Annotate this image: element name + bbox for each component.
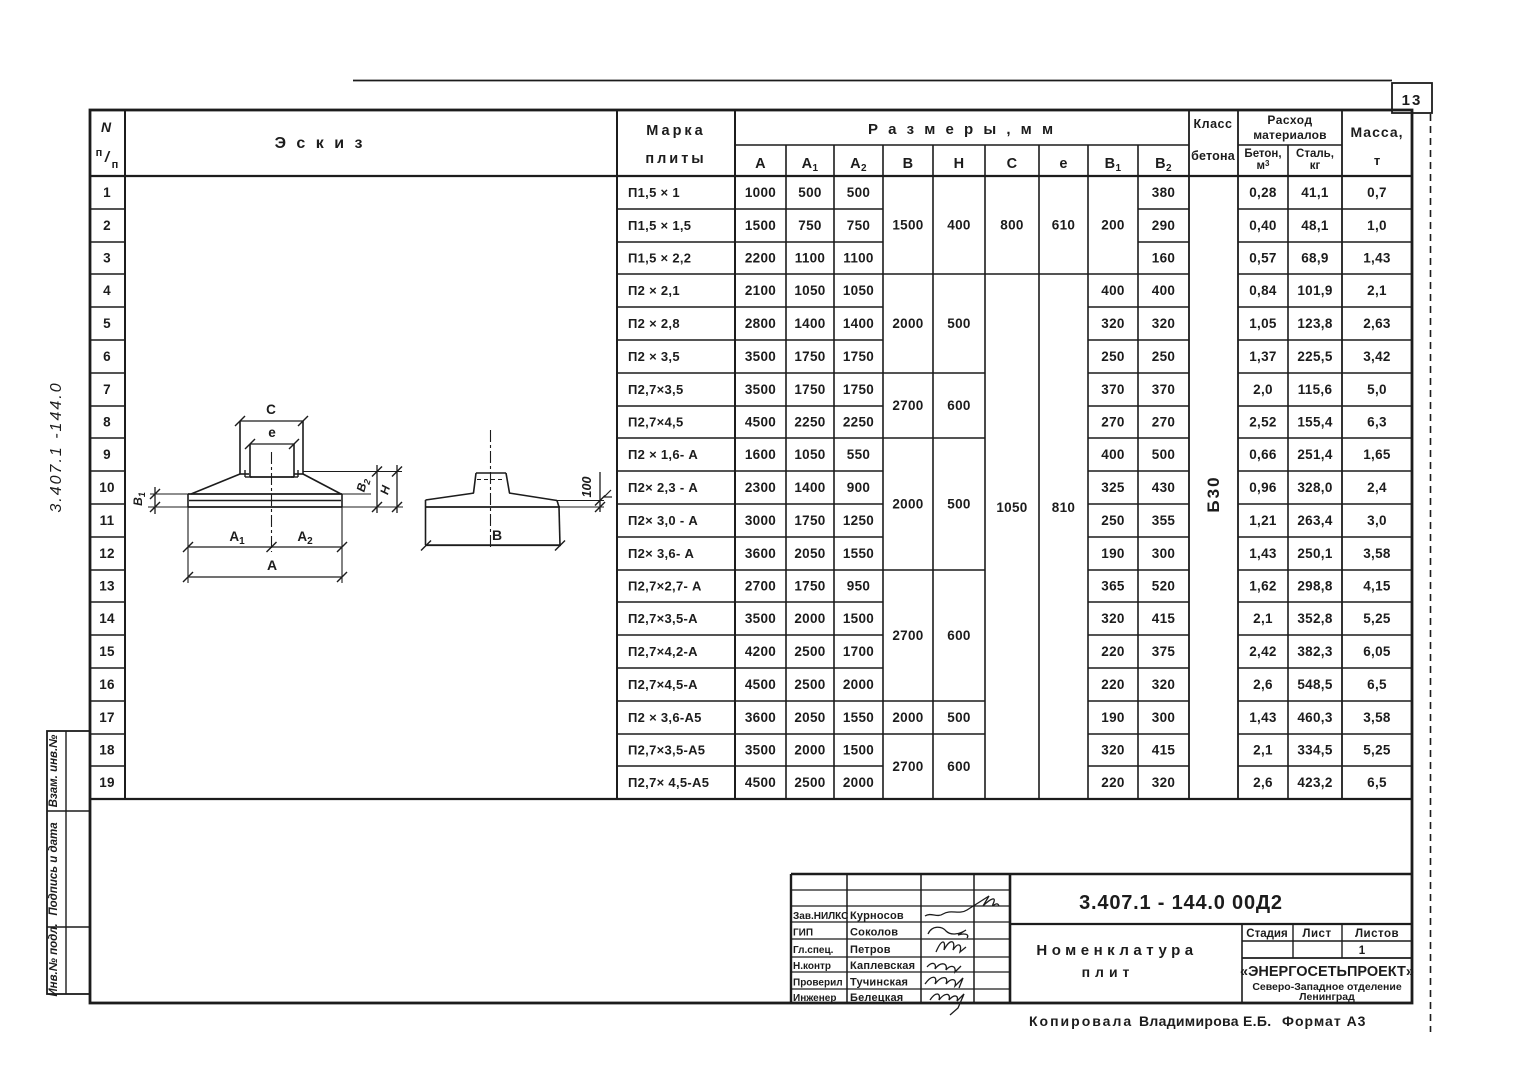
svg-text:2800: 2800 <box>745 316 776 331</box>
svg-text:С: С <box>1007 156 1018 172</box>
svg-text:750: 750 <box>798 218 821 233</box>
svg-text:250,1: 250,1 <box>1297 546 1332 561</box>
svg-text:Инв.№ подл.: Инв.№ подл. <box>48 923 60 996</box>
svg-text:плит: плит <box>1082 964 1135 980</box>
svg-text:Бетон,: Бетон, <box>1244 148 1281 160</box>
svg-text:2: 2 <box>103 218 111 233</box>
svg-text:В: В <box>903 156 914 172</box>
svg-text:4200: 4200 <box>745 644 776 659</box>
svg-text:Расход: Расход <box>1267 113 1312 127</box>
svg-text:380: 380 <box>1152 185 1175 200</box>
svg-text:Б30: Б30 <box>1204 475 1223 512</box>
svg-text:600: 600 <box>947 759 970 774</box>
svg-text:365: 365 <box>1101 579 1125 594</box>
svg-text:400: 400 <box>1101 283 1124 298</box>
svg-text:2000: 2000 <box>843 775 874 790</box>
svg-text:19: 19 <box>99 775 115 790</box>
svg-text:1050: 1050 <box>794 447 825 462</box>
svg-text:460,3: 460,3 <box>1297 710 1332 725</box>
svg-text:250: 250 <box>1101 349 1124 364</box>
svg-text:Класс: Класс <box>1194 117 1233 131</box>
svg-text:Соколов: Соколов <box>850 927 898 939</box>
svg-text:Листов: Листов <box>1355 928 1399 940</box>
svg-text:Формат А3: Формат А3 <box>1282 1013 1366 1029</box>
svg-text:5,25: 5,25 <box>1363 743 1391 758</box>
svg-text:0,66: 0,66 <box>1249 447 1277 462</box>
svg-text:П2,7× 4,5-А5: П2,7× 4,5-А5 <box>628 775 709 790</box>
svg-text:N: N <box>101 119 112 135</box>
svg-text:2000: 2000 <box>892 497 923 512</box>
svg-text:2300: 2300 <box>745 480 776 495</box>
svg-text:2250: 2250 <box>843 415 874 430</box>
svg-text:П1,5 × 1,5: П1,5 × 1,5 <box>628 218 691 233</box>
svg-text:1600: 1600 <box>745 447 776 462</box>
svg-text:810: 810 <box>1052 500 1075 515</box>
svg-text:Р а з м е р ы , м м: Р а з м е р ы , м м <box>868 121 1056 138</box>
svg-text:П2,7×3,5: П2,7×3,5 <box>628 382 683 397</box>
svg-text:290: 290 <box>1152 218 1175 233</box>
svg-text:3,58: 3,58 <box>1363 546 1391 561</box>
svg-text:Копировала: Копировала <box>1029 1013 1133 1029</box>
svg-text:3500: 3500 <box>745 611 776 626</box>
svg-text:Петров: Петров <box>850 944 891 956</box>
svg-text:Белецкая: Белецкая <box>850 992 903 1004</box>
svg-text:1: 1 <box>1359 945 1366 957</box>
svg-text:5,25: 5,25 <box>1363 611 1391 626</box>
svg-text:950: 950 <box>847 579 870 594</box>
svg-text:1550: 1550 <box>843 710 874 725</box>
svg-text:1050: 1050 <box>996 500 1027 515</box>
svg-text:500: 500 <box>798 185 821 200</box>
svg-text:375: 375 <box>1152 644 1176 659</box>
svg-text:Стадия: Стадия <box>1246 928 1287 940</box>
svg-text:П2,7×4,5-А: П2,7×4,5-А <box>628 677 698 692</box>
svg-text:160: 160 <box>1152 251 1175 266</box>
svg-text:548,5: 548,5 <box>1297 677 1332 692</box>
svg-text:Тучинская: Тучинская <box>850 977 908 989</box>
svg-text:123,8: 123,8 <box>1297 316 1332 331</box>
svg-text:600: 600 <box>947 628 970 643</box>
svg-text:17: 17 <box>99 710 115 725</box>
svg-text:3600: 3600 <box>745 546 776 561</box>
svg-text:48,1: 48,1 <box>1301 218 1329 233</box>
svg-text:П2 × 3,6-А5: П2 × 3,6-А5 <box>628 710 702 725</box>
svg-text:Масса,: Масса, <box>1350 124 1403 140</box>
svg-text:8: 8 <box>103 415 111 430</box>
svg-text:Владимирова Е.Б.: Владимирова Е.Б. <box>1139 1013 1271 1029</box>
svg-text:18: 18 <box>99 743 115 758</box>
svg-text:0,7: 0,7 <box>1367 185 1387 200</box>
svg-text:101,9: 101,9 <box>1297 283 1332 298</box>
svg-text:П1,5 × 1: П1,5 × 1 <box>628 185 680 200</box>
svg-text:е: е <box>268 425 276 440</box>
svg-text:6,05: 6,05 <box>1363 644 1391 659</box>
svg-text:2250: 2250 <box>794 415 825 430</box>
svg-text:430: 430 <box>1152 480 1175 495</box>
svg-text:Взам. инв.№: Взам. инв.№ <box>48 735 60 808</box>
svg-text:2,63: 2,63 <box>1363 316 1391 331</box>
svg-text:1,65: 1,65 <box>1363 447 1391 462</box>
svg-text:3: 3 <box>103 251 111 266</box>
svg-text:1750: 1750 <box>794 382 825 397</box>
svg-text:14: 14 <box>99 611 115 626</box>
svg-text:2,4: 2,4 <box>1367 480 1387 495</box>
svg-text:Инженер: Инженер <box>793 993 836 1004</box>
svg-text:382,3: 382,3 <box>1297 644 1332 659</box>
svg-text:423,2: 423,2 <box>1297 775 1332 790</box>
svg-text:Н.контр: Н.контр <box>793 961 831 972</box>
svg-text:2700: 2700 <box>892 628 923 643</box>
svg-text:13: 13 <box>1402 92 1423 109</box>
svg-text:ГИП: ГИП <box>793 928 813 939</box>
svg-text:9: 9 <box>103 447 111 462</box>
svg-text:1100: 1100 <box>843 251 874 266</box>
svg-text:3000: 3000 <box>745 513 776 528</box>
svg-text:П2× 3,6- А: П2× 3,6- А <box>628 546 694 561</box>
svg-text:0,40: 0,40 <box>1249 218 1276 233</box>
svg-text:Н: Н <box>954 156 965 172</box>
svg-text:2000: 2000 <box>843 677 874 692</box>
svg-text:0,96: 0,96 <box>1249 480 1277 495</box>
svg-text:1,43: 1,43 <box>1249 546 1277 561</box>
svg-text:2,6: 2,6 <box>1253 775 1273 790</box>
svg-text:Проверил: Проверил <box>793 978 843 989</box>
svg-text:Лист: Лист <box>1302 928 1331 940</box>
svg-text:1500: 1500 <box>843 743 874 758</box>
svg-text:300: 300 <box>1152 710 1175 725</box>
svg-text:1500: 1500 <box>892 218 923 233</box>
svg-text:П2× 3,0 - А: П2× 3,0 - А <box>628 513 698 528</box>
svg-text:320: 320 <box>1101 743 1124 758</box>
svg-text:0,57: 0,57 <box>1249 251 1276 266</box>
svg-text:1700: 1700 <box>843 644 874 659</box>
svg-text:2,1: 2,1 <box>1253 743 1273 758</box>
svg-text:320: 320 <box>1101 611 1124 626</box>
svg-text:1550: 1550 <box>843 546 874 561</box>
svg-text:Ленинград: Ленинград <box>1299 991 1355 1003</box>
svg-text:2050: 2050 <box>794 546 825 561</box>
svg-text:190: 190 <box>1101 546 1124 561</box>
svg-text:2050: 2050 <box>794 710 825 725</box>
svg-text:1000: 1000 <box>745 185 776 200</box>
svg-text:270: 270 <box>1101 415 1124 430</box>
svg-text:т: т <box>1374 153 1380 168</box>
svg-text:В: В <box>492 527 502 543</box>
svg-text:3.407.1 -144.0: 3.407.1 -144.0 <box>48 381 65 512</box>
svg-text:1,21: 1,21 <box>1249 513 1277 528</box>
svg-text:П2× 2,3 - А: П2× 2,3 - А <box>628 480 698 495</box>
svg-text:1,05: 1,05 <box>1249 316 1277 331</box>
svg-text:2700: 2700 <box>745 579 776 594</box>
svg-text:13: 13 <box>99 579 115 594</box>
svg-text:2500: 2500 <box>794 775 825 790</box>
svg-text:300: 300 <box>1152 546 1175 561</box>
svg-text:320: 320 <box>1101 316 1124 331</box>
svg-text:610: 610 <box>1052 218 1075 233</box>
svg-text:7: 7 <box>103 382 111 397</box>
svg-text:материалов: материалов <box>1253 128 1327 142</box>
svg-text:220: 220 <box>1101 775 1124 790</box>
svg-text:3500: 3500 <box>745 349 776 364</box>
svg-text:328,0: 328,0 <box>1297 480 1332 495</box>
svg-text:Зав.НИЛКС: Зав.НИЛКС <box>793 911 848 922</box>
svg-text:415: 415 <box>1152 611 1176 626</box>
svg-text:15: 15 <box>99 644 115 659</box>
svg-text:П2 × 2,8: П2 × 2,8 <box>628 316 680 331</box>
svg-text:2000: 2000 <box>794 743 825 758</box>
svg-text:«ЭНЕРГОСЕТЬПРОЕКТ»: «ЭНЕРГОСЕТЬПРОЕКТ» <box>1240 964 1414 980</box>
svg-text:п: п <box>96 147 103 159</box>
svg-text:1750: 1750 <box>794 513 825 528</box>
svg-text:263,4: 263,4 <box>1297 513 1332 528</box>
svg-text:550: 550 <box>847 447 870 462</box>
svg-text:415: 415 <box>1152 743 1176 758</box>
svg-text:320: 320 <box>1152 316 1175 331</box>
svg-text:1750: 1750 <box>843 349 874 364</box>
svg-text:0,84: 0,84 <box>1249 283 1277 298</box>
svg-text:1250: 1250 <box>843 513 874 528</box>
svg-text:520: 520 <box>1152 579 1175 594</box>
svg-text:1100: 1100 <box>795 251 826 266</box>
svg-text:298,8: 298,8 <box>1297 579 1332 594</box>
svg-text:400: 400 <box>947 218 970 233</box>
svg-text:Гл.спец.: Гл.спец. <box>793 945 834 956</box>
svg-text:320: 320 <box>1152 677 1175 692</box>
svg-text:1: 1 <box>103 185 111 200</box>
svg-text:3600: 3600 <box>745 710 776 725</box>
svg-text:400: 400 <box>1152 283 1175 298</box>
svg-text:П2 × 2,1: П2 × 2,1 <box>628 283 680 298</box>
svg-text:250: 250 <box>1152 349 1175 364</box>
svg-text:3500: 3500 <box>745 382 776 397</box>
svg-text:355: 355 <box>1152 513 1176 528</box>
svg-text:1750: 1750 <box>794 579 825 594</box>
svg-text:4500: 4500 <box>745 677 776 692</box>
svg-text:1750: 1750 <box>794 349 825 364</box>
svg-text:6: 6 <box>103 349 111 364</box>
svg-text:190: 190 <box>1101 710 1124 725</box>
svg-text:500: 500 <box>947 316 970 331</box>
svg-text:кг: кг <box>1310 160 1321 172</box>
svg-text:10: 10 <box>99 480 115 495</box>
svg-text:2,1: 2,1 <box>1367 283 1387 298</box>
svg-text:2700: 2700 <box>892 398 923 413</box>
svg-text:Подпись и дата: Подпись и дата <box>48 822 60 916</box>
svg-text:1,43: 1,43 <box>1363 251 1391 266</box>
svg-text:Курносов: Курносов <box>850 910 904 922</box>
svg-text:П2,7×4,2-А: П2,7×4,2-А <box>628 644 698 659</box>
svg-text:12: 12 <box>99 546 115 561</box>
svg-text:4500: 4500 <box>745 775 776 790</box>
svg-text:0,28: 0,28 <box>1249 185 1277 200</box>
svg-text:1050: 1050 <box>843 283 874 298</box>
svg-text:225,5: 225,5 <box>1297 349 1332 364</box>
svg-text:500: 500 <box>847 185 870 200</box>
svg-text:600: 600 <box>947 398 970 413</box>
svg-text:Марка: Марка <box>646 123 706 139</box>
svg-text:А: А <box>267 557 277 573</box>
svg-text:2200: 2200 <box>745 251 776 266</box>
svg-text:200: 200 <box>1101 218 1124 233</box>
svg-text:4500: 4500 <box>745 415 776 430</box>
svg-text:270: 270 <box>1152 415 1175 430</box>
svg-text:2000: 2000 <box>892 710 923 725</box>
svg-text:1050: 1050 <box>794 283 825 298</box>
svg-text:3,42: 3,42 <box>1363 349 1390 364</box>
svg-text:1400: 1400 <box>794 316 825 331</box>
svg-text:плиты: плиты <box>645 151 706 167</box>
svg-text:500: 500 <box>947 497 970 512</box>
svg-text:бетона: бетона <box>1191 149 1236 163</box>
svg-text:3.407.1 - 144.0 00Д2: 3.407.1 - 144.0 00Д2 <box>1079 892 1283 914</box>
svg-text:2,1: 2,1 <box>1253 611 1273 626</box>
svg-text:3500: 3500 <box>745 743 776 758</box>
svg-text:2000: 2000 <box>892 316 923 331</box>
svg-text:370: 370 <box>1152 382 1175 397</box>
svg-text:750: 750 <box>847 218 870 233</box>
svg-text:352,8: 352,8 <box>1297 611 1332 626</box>
svg-text:1,0: 1,0 <box>1367 218 1387 233</box>
svg-text:2500: 2500 <box>794 644 825 659</box>
svg-text:Э с к и з: Э с к и з <box>275 135 366 152</box>
svg-text:1400: 1400 <box>843 316 874 331</box>
svg-text:334,5: 334,5 <box>1297 743 1332 758</box>
svg-text:1500: 1500 <box>843 611 874 626</box>
svg-text:Сталь,: Сталь, <box>1296 148 1334 160</box>
svg-text:1750: 1750 <box>843 382 874 397</box>
svg-text:П1,5 × 2,2: П1,5 × 2,2 <box>628 251 691 266</box>
svg-text:325: 325 <box>1101 480 1125 495</box>
svg-text:220: 220 <box>1101 644 1124 659</box>
svg-text:41,1: 41,1 <box>1301 185 1329 200</box>
svg-text:370: 370 <box>1101 382 1124 397</box>
svg-text:6,3: 6,3 <box>1367 415 1387 430</box>
svg-text:1,43: 1,43 <box>1249 710 1277 725</box>
svg-text:5,0: 5,0 <box>1367 382 1387 397</box>
svg-text:е: е <box>1059 156 1067 172</box>
svg-text:3,58: 3,58 <box>1363 710 1391 725</box>
svg-text:П2,7×2,7- А: П2,7×2,7- А <box>628 579 702 594</box>
svg-text:68,9: 68,9 <box>1301 251 1328 266</box>
svg-text:4,15: 4,15 <box>1363 579 1391 594</box>
svg-text:2,42: 2,42 <box>1249 644 1276 659</box>
svg-text:П2 × 3,5: П2 × 3,5 <box>628 349 680 364</box>
svg-text:3,0: 3,0 <box>1367 513 1387 528</box>
svg-text:4: 4 <box>103 283 111 298</box>
svg-text:2700: 2700 <box>892 759 923 774</box>
svg-text:С: С <box>266 402 276 417</box>
svg-text:П2 × 1,6- А: П2 × 1,6- А <box>628 447 698 462</box>
svg-text:800: 800 <box>1000 218 1023 233</box>
svg-text:Номенклатура: Номенклатура <box>1036 942 1197 959</box>
svg-text:1500: 1500 <box>745 218 776 233</box>
svg-text:250: 250 <box>1101 513 1124 528</box>
svg-text:2500: 2500 <box>794 677 825 692</box>
svg-text:Каплевская: Каплевская <box>850 960 915 972</box>
svg-text:16: 16 <box>99 677 115 692</box>
svg-text:320: 320 <box>1152 775 1175 790</box>
svg-text:100: 100 <box>580 477 594 498</box>
svg-text:11: 11 <box>100 513 115 528</box>
svg-text:П2,7×4,5: П2,7×4,5 <box>628 415 683 430</box>
svg-text:П2,7×3,5-А: П2,7×3,5-А <box>628 611 698 626</box>
svg-text:6,5: 6,5 <box>1367 677 1387 692</box>
svg-text:155,4: 155,4 <box>1297 415 1332 430</box>
svg-text:A: A <box>755 156 766 172</box>
svg-text:220: 220 <box>1101 677 1124 692</box>
svg-text:2100: 2100 <box>745 283 776 298</box>
svg-text:900: 900 <box>847 480 870 495</box>
svg-text:500: 500 <box>947 710 970 725</box>
svg-text:6,5: 6,5 <box>1367 775 1387 790</box>
svg-text:1,37: 1,37 <box>1249 349 1276 364</box>
svg-text:2,52: 2,52 <box>1249 415 1276 430</box>
svg-text:2000: 2000 <box>794 611 825 626</box>
svg-text:500: 500 <box>1152 447 1175 462</box>
svg-text:251,4: 251,4 <box>1297 447 1332 462</box>
svg-text:2,6: 2,6 <box>1253 677 1273 692</box>
svg-text:П2,7×3,5-А5: П2,7×3,5-А5 <box>628 743 705 758</box>
svg-text:115,6: 115,6 <box>1298 382 1333 397</box>
svg-text:2,0: 2,0 <box>1253 382 1273 397</box>
svg-text:5: 5 <box>103 316 111 331</box>
svg-text:п: п <box>112 159 119 171</box>
svg-text:1,62: 1,62 <box>1249 579 1276 594</box>
svg-text:400: 400 <box>1101 447 1124 462</box>
svg-text:1400: 1400 <box>794 480 825 495</box>
